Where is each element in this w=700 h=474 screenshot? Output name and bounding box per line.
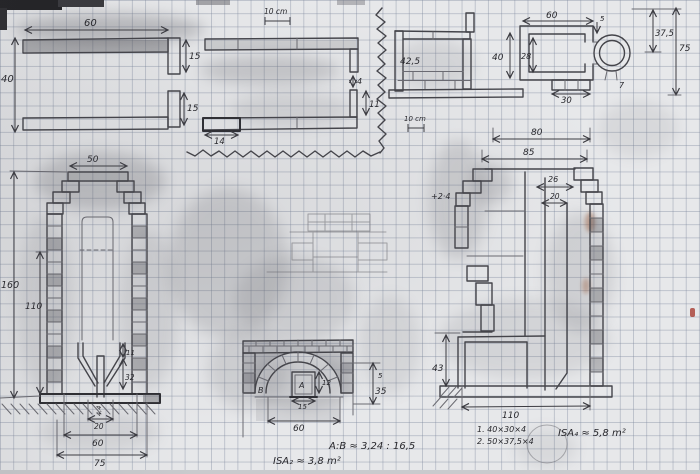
note-brick1: 1. 40×30×4	[477, 425, 526, 434]
dim-label: 4,4	[95, 406, 103, 416]
dim-label: 50	[87, 155, 99, 165]
dim-label: 110	[502, 411, 519, 421]
dim-label: 11	[369, 100, 380, 110]
drawing-stove-top-view: 60 40 28 5 30	[492, 11, 605, 106]
dim-label: 37,5	[655, 29, 674, 39]
dim-label: 12	[322, 379, 331, 387]
dim-label: 80	[531, 128, 543, 138]
dim-label: 30	[561, 96, 572, 106]
dim-label: 43	[432, 364, 444, 374]
note-label: +2·4	[431, 192, 450, 201]
dim-label: 11	[126, 349, 135, 357]
graph-paper-scan: 60 40 15 15 10 cm 4 11 14	[0, 0, 700, 474]
pipe-detail: 37,5 75 7	[593, 8, 691, 95]
dim-label: 75	[94, 459, 106, 469]
dim-label: 35	[375, 387, 387, 397]
dim-label: 40	[1, 74, 14, 85]
door-label: A	[298, 381, 304, 390]
b-label: B	[258, 386, 264, 395]
drawing-top-left-plan: 60 40 15 15	[1, 18, 201, 132]
dim-label: 20	[550, 192, 560, 201]
left-elevation: 50	[0, 155, 160, 469]
handwritten-notes: A:B ≈ 3,24 : 16,5 ISA₂ ≈ 3,8 m² 1. 40×30…	[273, 425, 626, 467]
dim-label: 7	[619, 81, 625, 90]
note-isa2: ISA₂ ≈ 3,8 m²	[273, 456, 341, 467]
scale-bar-label: 10 cm	[264, 7, 287, 16]
dim-label: 14	[214, 137, 225, 147]
dim-label: 110	[25, 302, 42, 312]
dim-label: 28	[521, 52, 531, 61]
dim-label: 15	[187, 104, 199, 114]
dim-label: 42,5	[400, 57, 420, 67]
dim-label: 60	[293, 424, 305, 434]
dim-label: 60	[546, 11, 558, 21]
drawing-top-middle-plan: 10 cm 4 11 14	[203, 7, 380, 147]
scale-bar-label: 10 cm	[404, 115, 426, 123]
dim-label: 32	[125, 373, 135, 382]
pencil-sketch: 60 40 15 15 10 cm 4 11 14	[0, 0, 700, 474]
fireplace-arch-front: A B 12 15 5 35 60	[243, 340, 387, 437]
note-brick2: 2. 50×37,5×4	[477, 437, 534, 446]
note-isa4: ISA₄ ≈ 5,8 m²	[558, 428, 626, 439]
dim-label: 26	[548, 175, 558, 184]
dim-label: 5	[378, 372, 383, 380]
dim-label: 5	[600, 15, 605, 23]
dim-label: 60	[92, 439, 104, 449]
dim-label: 160	[1, 280, 19, 291]
dim-label: 40	[492, 53, 504, 63]
dim-label: 15	[189, 52, 201, 62]
scale-bar-mid: 10 cm	[404, 115, 426, 132]
dim-label: 20	[94, 422, 104, 431]
dim-label: 4	[357, 77, 362, 86]
note-ratio: A:B ≈ 3,24 : 16,5	[328, 441, 415, 452]
faint-brick-sketch	[267, 214, 387, 272]
dim-label: 85	[523, 148, 535, 158]
dim-label: 15	[298, 403, 307, 411]
right-stove-section: 80 85 26 20 +2·4	[431, 128, 612, 421]
dim-label: 60	[84, 18, 97, 29]
dim-label: 75	[679, 44, 691, 54]
